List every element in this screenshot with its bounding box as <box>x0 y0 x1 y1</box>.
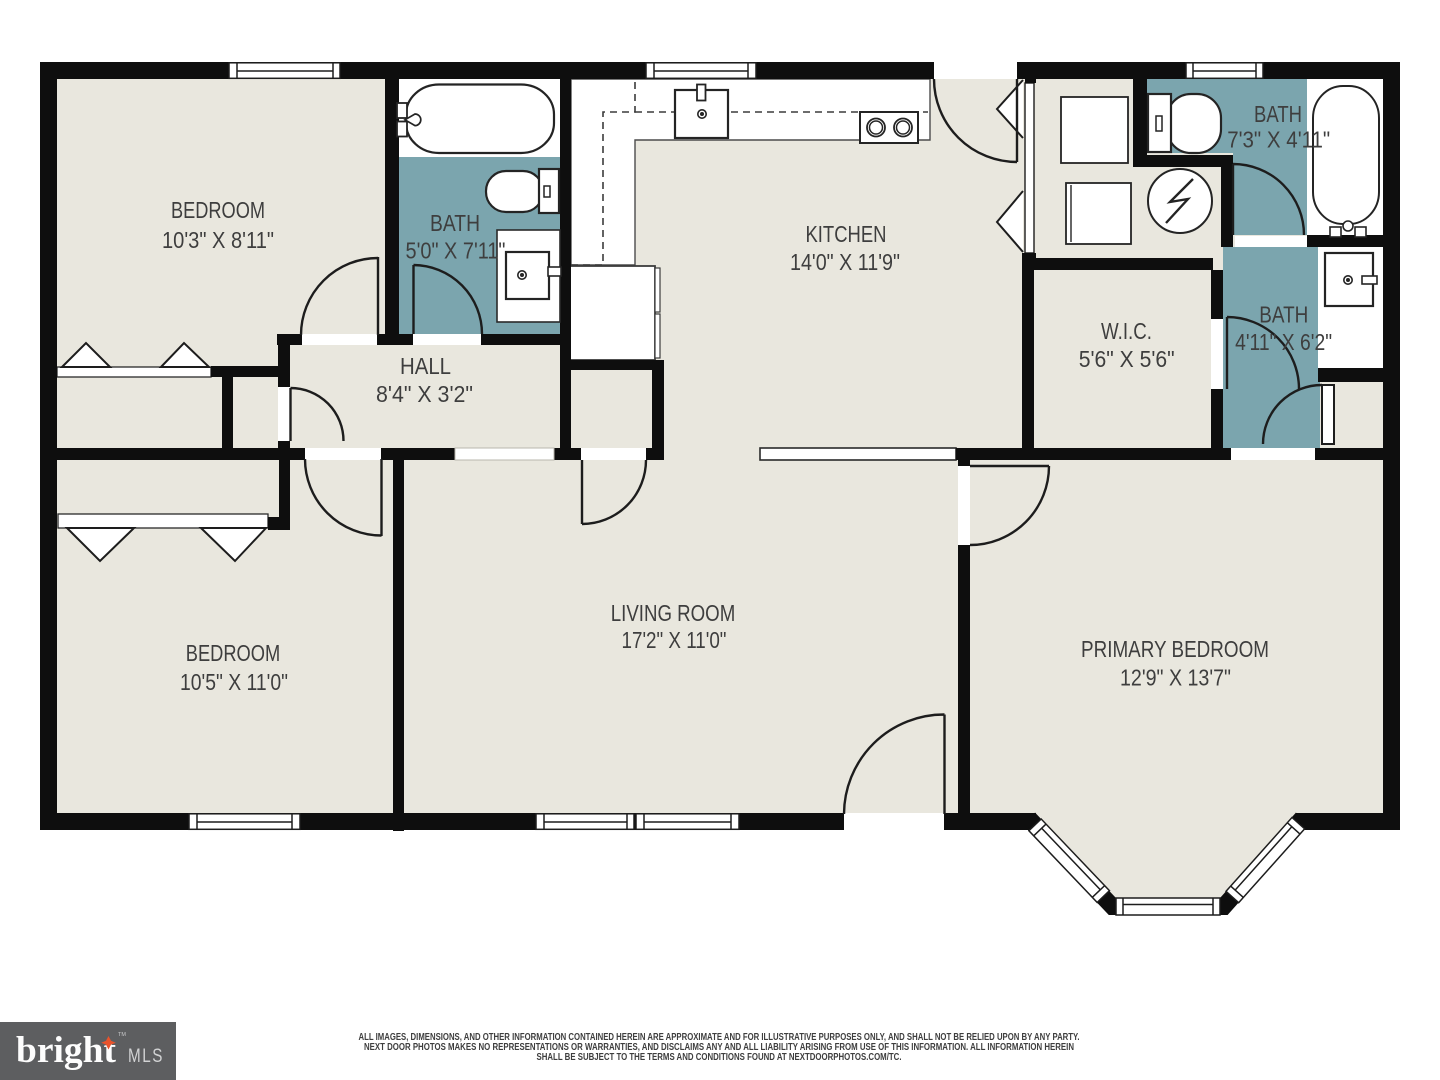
svg-text:4'11" X 6'2": 4'11" X 6'2" <box>1235 329 1332 355</box>
svg-text:bright: bright <box>16 1030 117 1071</box>
svg-text:HALL: HALL <box>400 353 451 379</box>
svg-text:KITCHEN: KITCHEN <box>806 221 887 247</box>
svg-text:10'5" X 11'0": 10'5" X 11'0" <box>180 669 288 695</box>
svg-text:12'9" X 13'7": 12'9" X 13'7" <box>1120 665 1231 691</box>
svg-text:BATH: BATH <box>430 210 480 236</box>
svg-text:7'3" X 4'11": 7'3" X 4'11" <box>1227 127 1330 153</box>
svg-text:BATH: BATH <box>1259 302 1308 328</box>
svg-text:PRIMARY BEDROOM: PRIMARY BEDROOM <box>1081 636 1269 662</box>
svg-text:TM: TM <box>118 1032 126 1038</box>
svg-text:W.I.C.: W.I.C. <box>1101 318 1152 344</box>
svg-text:BEDROOM: BEDROOM <box>186 640 281 666</box>
svg-text:8'4" X 3'2": 8'4" X 3'2" <box>376 381 473 407</box>
svg-text:14'0" X 11'9": 14'0" X 11'9" <box>790 249 900 275</box>
svg-text:BEDROOM: BEDROOM <box>171 197 265 223</box>
svg-text:5'6" X 5'6": 5'6" X 5'6" <box>1079 346 1175 372</box>
svg-text:BATH: BATH <box>1254 101 1302 127</box>
svg-text:17'2" X 11'0": 17'2" X 11'0" <box>622 627 727 653</box>
svg-text:10'3" X 8'11": 10'3" X 8'11" <box>162 227 274 253</box>
svg-text:LIVING ROOM: LIVING ROOM <box>611 600 736 626</box>
svg-text:SHALL BE SUBJECT TO THE TERMS: SHALL BE SUBJECT TO THE TERMS AND CONDIT… <box>537 1052 902 1063</box>
svg-text:5'0" X 7'11": 5'0" X 7'11" <box>406 238 506 264</box>
svg-text:MLS: MLS <box>128 1045 164 1067</box>
